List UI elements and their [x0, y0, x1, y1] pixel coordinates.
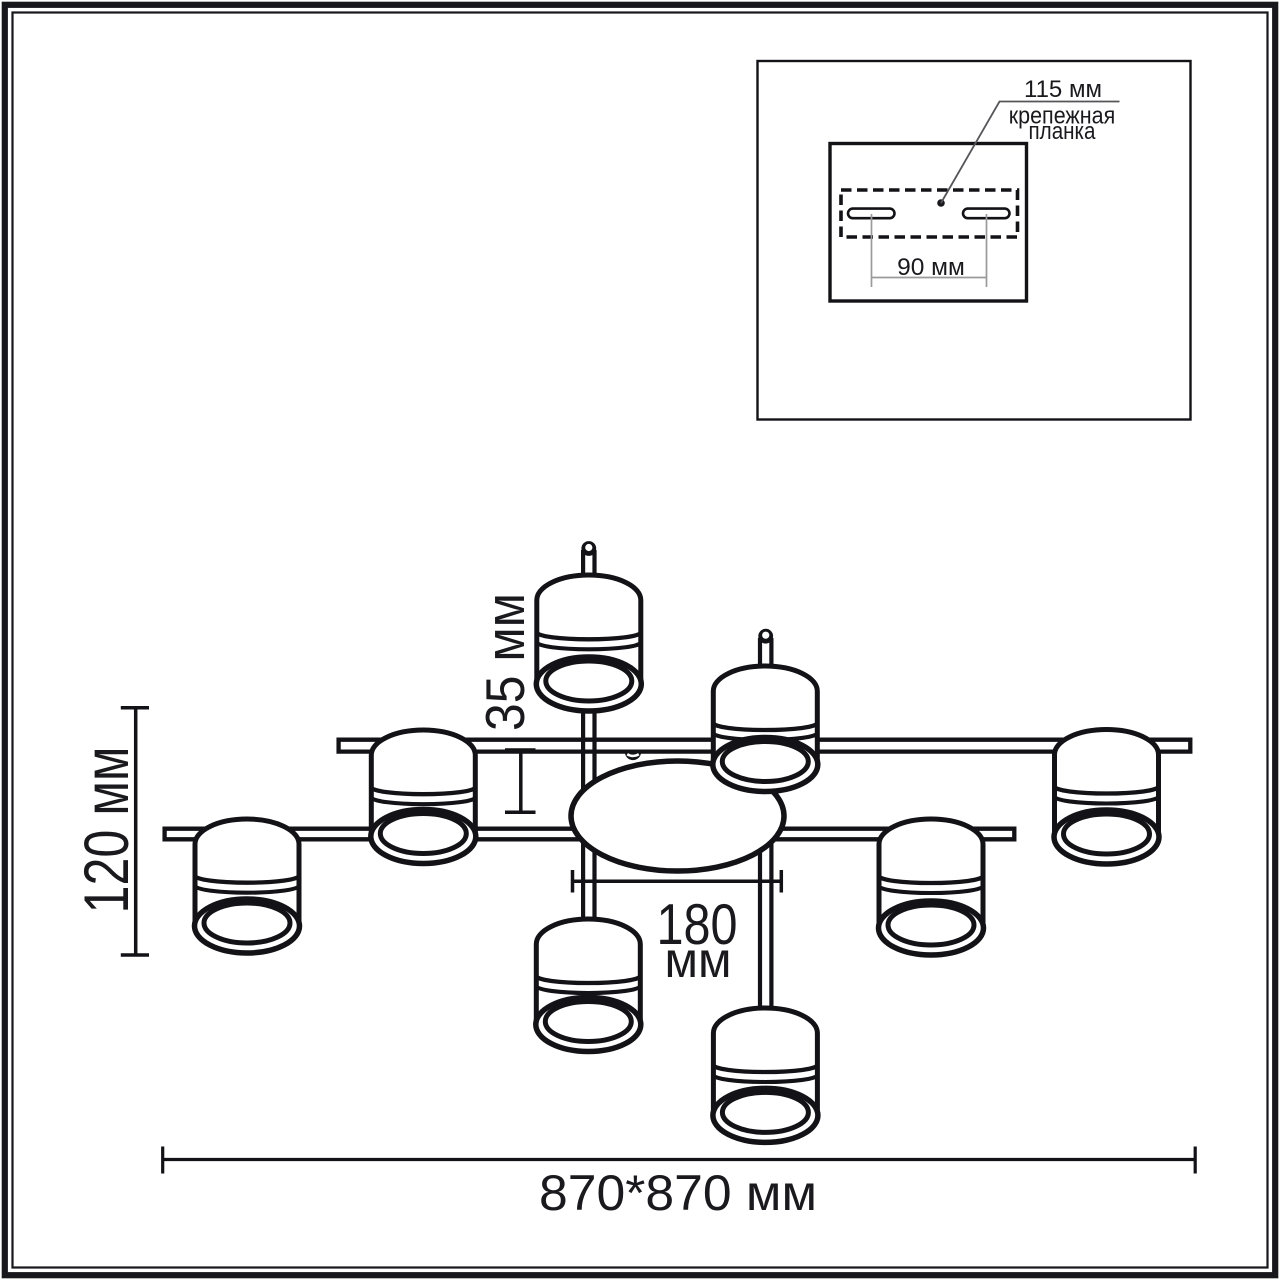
svg-text:120 мм: 120 мм: [72, 747, 142, 914]
svg-text:мм: мм: [665, 932, 732, 988]
svg-text:870*870 мм: 870*870 мм: [539, 1165, 817, 1221]
svg-text:планка: планка: [1029, 118, 1096, 145]
svg-text:90 мм: 90 мм: [897, 254, 965, 281]
svg-text:35 мм: 35 мм: [474, 593, 536, 731]
svg-text:115 мм: 115 мм: [1024, 76, 1102, 103]
